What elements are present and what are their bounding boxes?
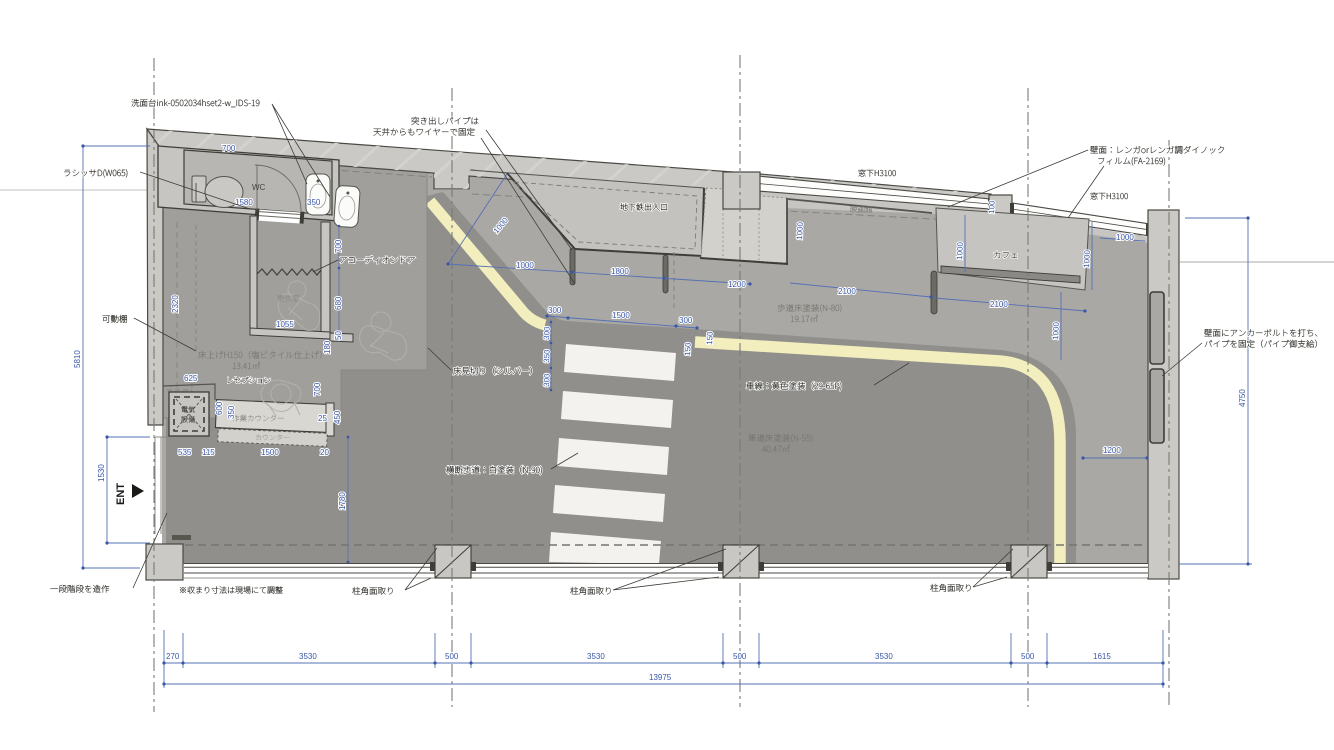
svg-text:1800: 1800 <box>611 267 629 276</box>
svg-text:1500: 1500 <box>261 448 279 457</box>
svg-text:150: 150 <box>705 331 715 345</box>
svg-text:1000: 1000 <box>516 261 534 270</box>
svg-text:1000: 1000 <box>795 221 805 240</box>
svg-text:500: 500 <box>1021 652 1035 661</box>
svg-text:5810: 5810 <box>73 350 82 368</box>
svg-text:180: 180 <box>323 340 332 354</box>
svg-text:535: 535 <box>178 448 192 457</box>
svg-text:13975: 13975 <box>649 673 672 682</box>
svg-text:500: 500 <box>445 652 459 661</box>
svg-text:700: 700 <box>334 239 343 253</box>
svg-text:350: 350 <box>307 198 321 207</box>
svg-text:1200: 1200 <box>1103 446 1121 455</box>
svg-text:4750: 4750 <box>1238 389 1247 407</box>
svg-text:680: 680 <box>334 296 343 310</box>
svg-text:300: 300 <box>542 326 552 340</box>
svg-text:1055: 1055 <box>276 320 294 329</box>
svg-text:1780: 1780 <box>338 492 347 510</box>
svg-text:350: 350 <box>542 349 552 363</box>
svg-text:450: 450 <box>333 410 342 424</box>
svg-text:3530: 3530 <box>587 652 605 661</box>
svg-text:WC: WC <box>252 183 266 192</box>
svg-text:100: 100 <box>987 200 997 214</box>
svg-text:50: 50 <box>334 331 343 340</box>
svg-text:700: 700 <box>222 144 236 153</box>
svg-text:300: 300 <box>542 373 552 387</box>
svg-text:270: 270 <box>166 652 180 661</box>
svg-text:1000: 1000 <box>1082 249 1092 268</box>
svg-text:150: 150 <box>683 342 693 356</box>
svg-text:1000: 1000 <box>955 241 965 260</box>
svg-text:500: 500 <box>733 652 747 661</box>
svg-text:20: 20 <box>320 448 329 457</box>
svg-text:600: 600 <box>215 401 224 415</box>
svg-text:2320: 2320 <box>171 295 180 313</box>
svg-text:2100: 2100 <box>990 300 1008 309</box>
svg-text:625: 625 <box>184 374 198 383</box>
svg-text:700: 700 <box>313 382 322 396</box>
svg-text:3530: 3530 <box>299 652 317 661</box>
svg-text:1000: 1000 <box>1051 321 1061 340</box>
svg-text:1000: 1000 <box>1116 233 1134 242</box>
svg-text:1200: 1200 <box>728 280 746 289</box>
svg-text:2100: 2100 <box>838 287 856 296</box>
svg-text:350: 350 <box>227 405 236 419</box>
svg-text:25: 25 <box>318 414 327 423</box>
svg-text:ENT: ENT <box>115 483 127 505</box>
svg-text:300: 300 <box>679 316 693 325</box>
svg-text:1615: 1615 <box>1093 652 1111 661</box>
svg-text:115: 115 <box>202 448 215 457</box>
svg-text:300: 300 <box>548 306 562 315</box>
svg-text:1580: 1580 <box>235 198 253 207</box>
svg-text:1530: 1530 <box>97 464 106 482</box>
svg-text:3530: 3530 <box>875 652 893 661</box>
svg-text:1500: 1500 <box>612 311 630 320</box>
